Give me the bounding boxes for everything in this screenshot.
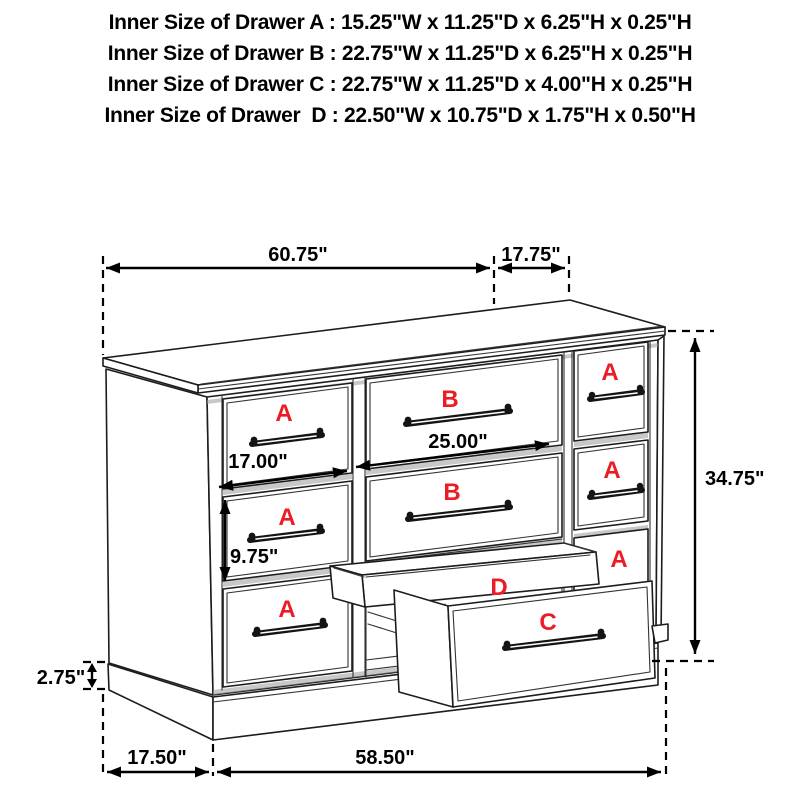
drawer-label-b: B: [441, 386, 458, 413]
drawer-label-a: A: [275, 400, 292, 427]
drawer-label-a: A: [603, 457, 620, 484]
right-corner-edge: [656, 336, 664, 640]
drawer-label-b: B: [443, 479, 460, 506]
dresser-diagram: A B A: [0, 0, 800, 800]
drawer-label-a: A: [278, 596, 295, 623]
drawer-a-middle-right: A: [574, 440, 648, 530]
drawer-glide-tab: [652, 624, 668, 643]
drawer-label-a: A: [610, 546, 627, 573]
drawer-left-wall: [394, 590, 453, 707]
dim-drawer-b-width-label: 25.00": [428, 431, 488, 453]
dim-drawer-a-height-label: 9.75": [230, 546, 278, 568]
dim-top-depth-label: 17.75": [501, 244, 561, 266]
dim-base-height-label: 2.75": [37, 667, 85, 689]
drawer-label-d: D: [490, 574, 507, 601]
dresser-dimension-page: Inner Size of Drawer A : 15.25"W x 11.25…: [0, 0, 800, 800]
dim-drawer-a-width-label: 17.00": [228, 451, 288, 473]
drawer-front: [574, 440, 648, 530]
dim-bottom-width-label: 58.50": [355, 747, 415, 769]
drawer-label-c: C: [539, 609, 556, 636]
dim-bottom-depth-label: 17.50": [127, 747, 187, 769]
drawer-label-a: A: [601, 359, 618, 386]
left-side-panel: [106, 369, 213, 695]
drawer-label-a: A: [278, 504, 295, 531]
base-height-tick-lines: [83, 662, 107, 689]
dim-overall-height-label: 34.75": [705, 468, 765, 490]
dim-arrow-base-height: [87, 663, 97, 688]
drawer-a-top-right: A: [574, 342, 648, 441]
dim-top-width-label: 60.75": [268, 244, 328, 266]
